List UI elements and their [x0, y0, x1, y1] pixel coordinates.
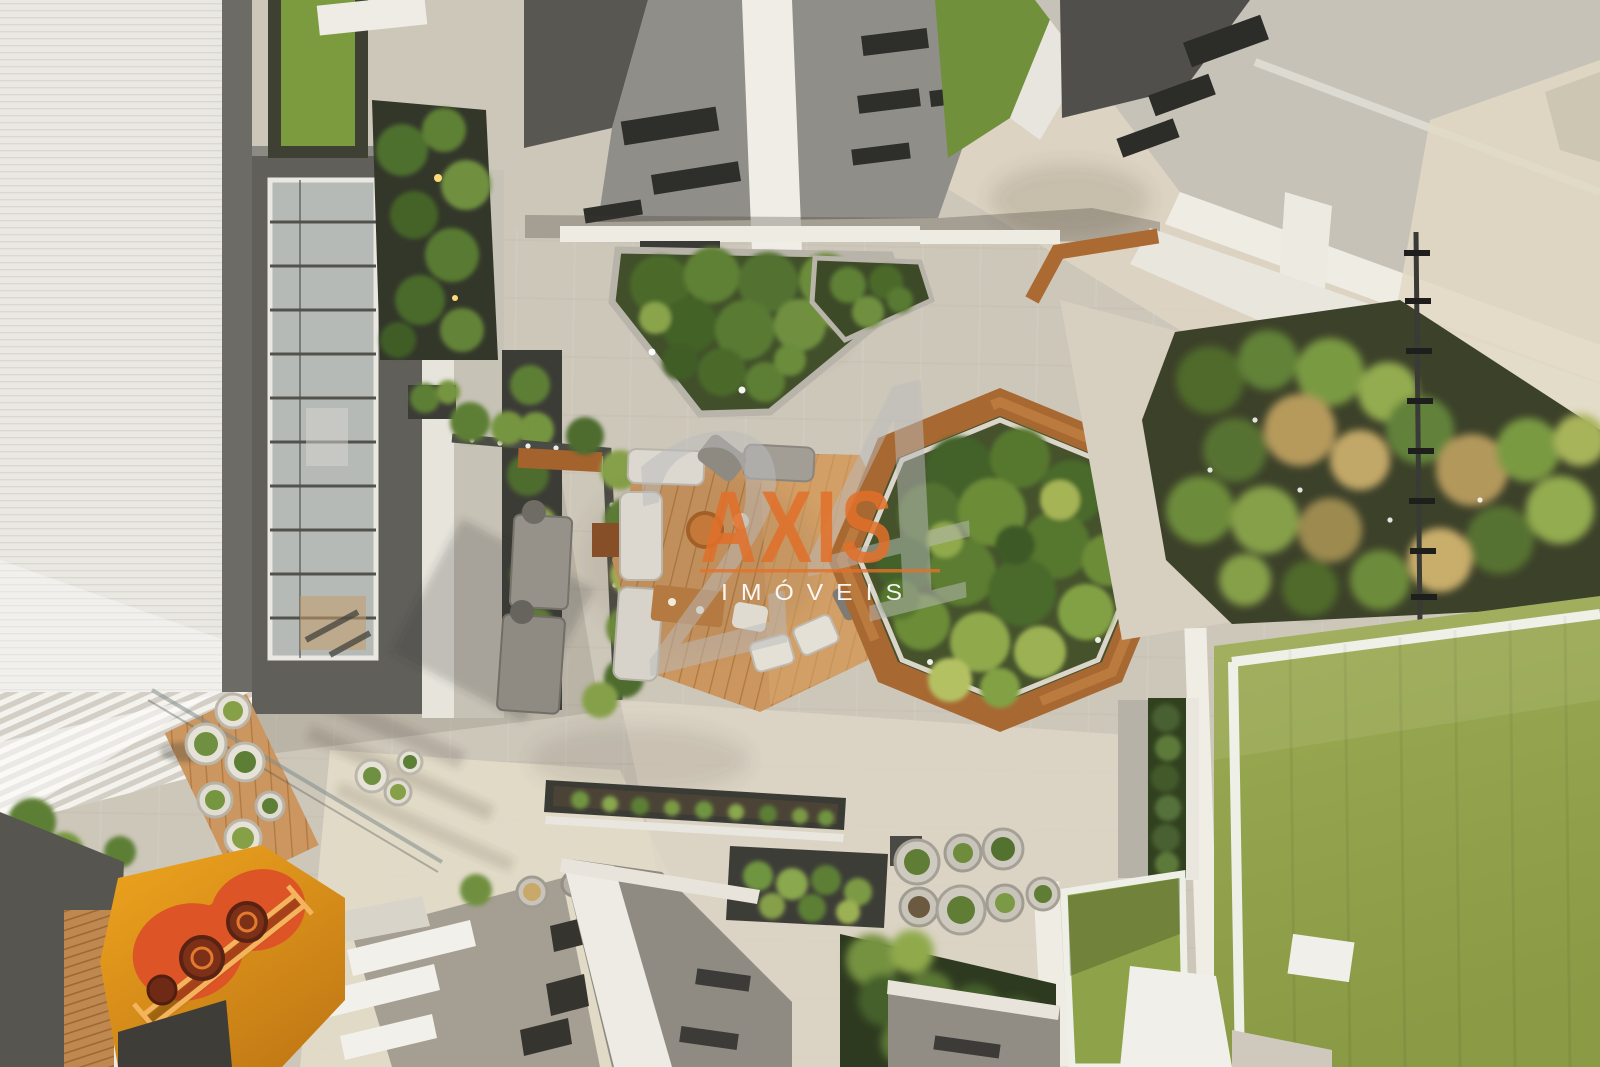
- big-turf-roof: [1184, 596, 1600, 1067]
- dark-wall-strip: [222, 0, 252, 714]
- white-curb: [1186, 698, 1199, 880]
- watermark-brand: AXIS: [700, 470, 896, 584]
- gray-wall: [1118, 700, 1148, 878]
- garden-light: [434, 174, 442, 182]
- playground: [100, 845, 345, 1067]
- white-beam-row: [560, 226, 920, 242]
- scene: 24 AXIS IMÓVEIS: [0, 0, 1600, 1067]
- watermark-subtitle: IMÓVEIS: [721, 579, 915, 605]
- white-beam-row-2: [920, 230, 1060, 244]
- potted-plant: [460, 874, 492, 906]
- garden-light: [1095, 637, 1101, 643]
- skylight-reflection: [306, 408, 348, 466]
- seesaw-wheel: [181, 937, 223, 979]
- white-block: [1288, 934, 1355, 982]
- watermark-rule: [700, 569, 940, 573]
- garden-light: [452, 295, 458, 301]
- white-beam: [742, 0, 802, 254]
- hedge-strip: [1118, 698, 1199, 880]
- garden-light: [649, 349, 656, 356]
- white-zigzag-wall: [1120, 966, 1232, 1067]
- aerial-courtyard-photo: 24 AXIS IMÓVEIS: [0, 0, 1600, 1067]
- white-ribbed-roof: [0, 0, 252, 714]
- seesaw-wheel: [228, 903, 266, 941]
- seesaw-wheel: [148, 976, 176, 1004]
